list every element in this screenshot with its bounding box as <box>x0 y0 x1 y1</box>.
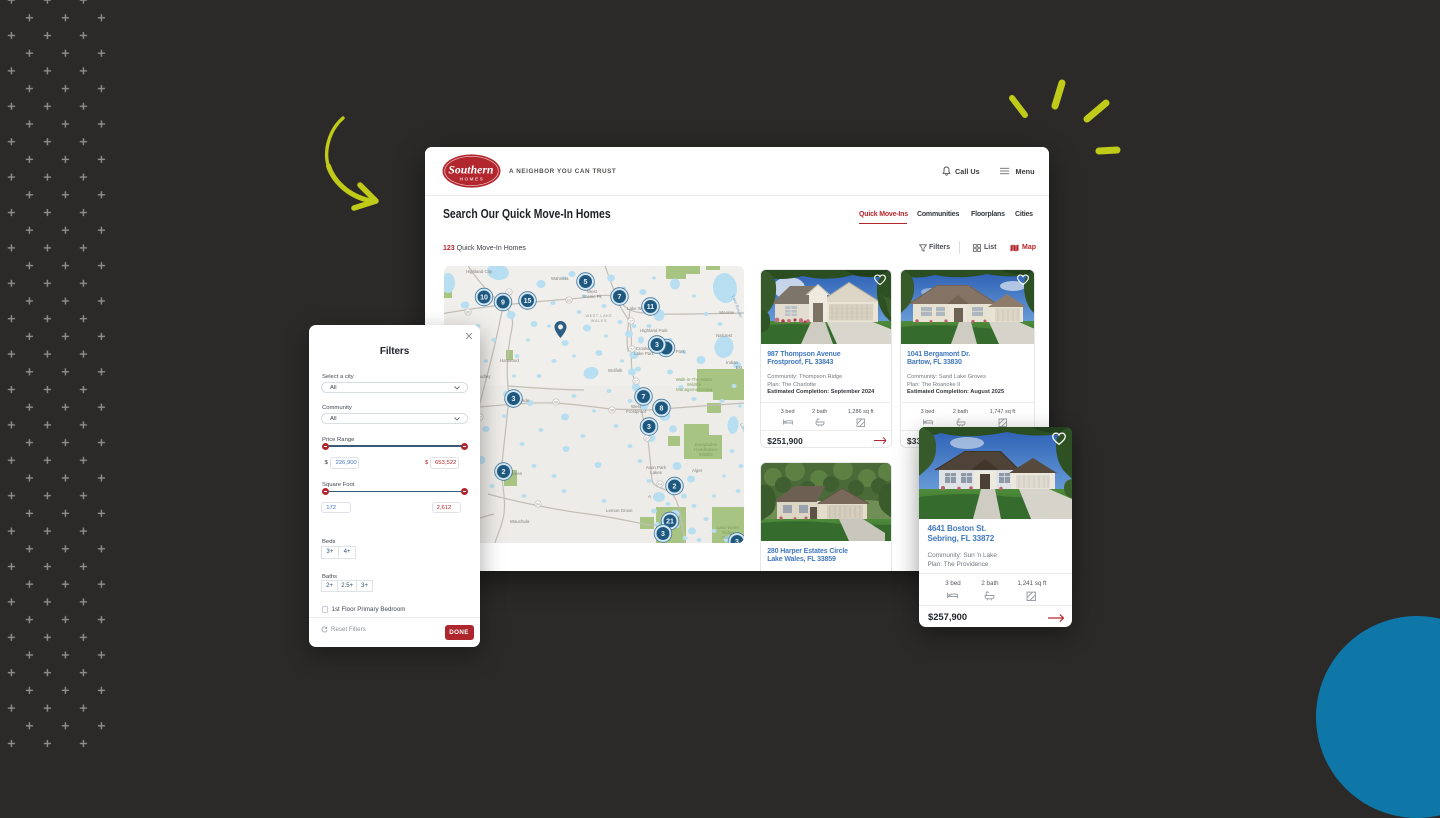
svg-text:Frostproof: Frostproof <box>625 409 646 414</box>
svg-text:Management Area: Management Area <box>676 387 712 392</box>
svg-text:2: 2 <box>501 469 505 476</box>
svg-text:A: A <box>648 494 651 499</box>
svg-text:10: 10 <box>480 294 488 301</box>
svg-text:Wahneta: Wahneta <box>551 276 569 281</box>
svg-text:21: 21 <box>666 518 674 525</box>
svg-text:3: 3 <box>511 396 515 403</box>
svg-text:64: 64 <box>658 482 662 486</box>
svg-text:17: 17 <box>629 319 633 323</box>
svg-text:3: 3 <box>655 342 659 349</box>
svg-text:Moorse: Moorse <box>719 310 734 315</box>
svg-text:3: 3 <box>647 424 651 431</box>
svg-text:27: 27 <box>634 379 638 383</box>
svg-text:3: 3 <box>735 539 739 543</box>
svg-text:17: 17 <box>507 290 511 294</box>
svg-text:7: 7 <box>641 394 645 401</box>
svg-text:Nalcrest: Nalcrest <box>716 333 733 338</box>
svg-text:Alger: Alger <box>692 468 703 473</box>
svg-text:11: 11 <box>646 304 654 311</box>
svg-text:15: 15 <box>523 298 531 305</box>
svg-text:WEST LAKE: WEST LAKE <box>585 314 612 318</box>
svg-text:WALES: WALES <box>590 319 606 323</box>
svg-text:60: 60 <box>466 310 470 314</box>
svg-text:Wolfolk: Wolfolk <box>608 368 623 373</box>
svg-text:Highland City: Highland City <box>466 269 493 274</box>
svg-text:HOMES: HOMES <box>460 177 485 182</box>
svg-text:8: 8 <box>659 405 663 412</box>
svg-text:Hartwood: Hartwood <box>500 358 519 363</box>
svg-text:Wildlife: Wildlife <box>698 452 713 457</box>
svg-text:2: 2 <box>672 483 676 490</box>
svg-text:Southern: Southern <box>448 162 493 176</box>
svg-text:7: 7 <box>617 294 621 301</box>
svg-text:Lakes: Lakes <box>650 470 663 475</box>
svg-text:64: 64 <box>536 502 540 506</box>
svg-text:Wauchula: Wauchula <box>510 519 530 524</box>
svg-text:Highland Park: Highland Park <box>640 328 668 333</box>
svg-text:9: 9 <box>501 299 505 306</box>
svg-text:5: 5 <box>583 279 587 286</box>
svg-text:Scenic Pk: Scenic Pk <box>582 294 602 299</box>
svg-text:Lemon Grove: Lemon Grove <box>606 508 633 513</box>
svg-text:3: 3 <box>661 531 665 538</box>
svg-text:98: 98 <box>610 408 614 412</box>
svg-text:adley: adley <box>480 374 491 379</box>
svg-text:ade: ade <box>522 398 530 403</box>
svg-text:27: 27 <box>645 436 649 440</box>
svg-text:60: 60 <box>567 298 571 302</box>
svg-text:98: 98 <box>554 400 558 404</box>
svg-text:Est: Est <box>735 365 742 370</box>
